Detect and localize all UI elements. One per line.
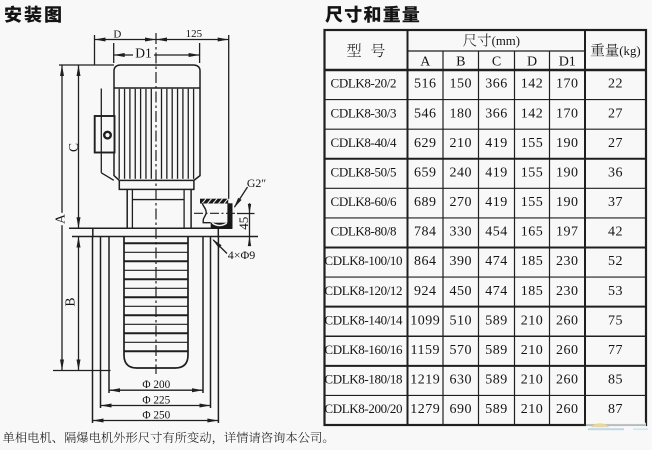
svg-text:B: B	[456, 55, 465, 70]
svg-text:CDLK8-140/14: CDLK8-140/14	[324, 312, 403, 327]
svg-text:142: 142	[521, 106, 544, 121]
svg-text:659: 659	[414, 165, 437, 180]
svg-text:474: 474	[485, 254, 508, 269]
svg-text:CDLK8-20/2: CDLK8-20/2	[331, 76, 397, 91]
svg-text:240: 240	[450, 165, 473, 180]
svg-text:419: 419	[485, 165, 508, 180]
svg-text:190: 190	[556, 165, 579, 180]
svg-text:190: 190	[556, 195, 579, 210]
svg-text:185: 185	[521, 254, 544, 269]
svg-text:CDLK8-120/12: CDLK8-120/12	[324, 283, 402, 298]
svg-text:142: 142	[521, 77, 544, 92]
svg-text:924: 924	[414, 284, 437, 299]
svg-text:77: 77	[608, 343, 623, 358]
svg-text:190: 190	[556, 136, 579, 151]
svg-text:4×Φ9: 4×Φ9	[228, 248, 256, 262]
svg-text:589: 589	[485, 402, 508, 417]
svg-text:CDLK8-100/10: CDLK8-100/10	[324, 253, 402, 268]
svg-text:784: 784	[414, 225, 437, 240]
svg-text:629: 629	[414, 136, 437, 151]
svg-text:689: 689	[414, 195, 437, 210]
svg-text:210: 210	[521, 402, 544, 417]
svg-text:230: 230	[556, 254, 579, 269]
svg-text:390: 390	[450, 254, 473, 269]
svg-text:85: 85	[608, 373, 623, 388]
svg-text:155: 155	[521, 195, 544, 210]
svg-text:D1: D1	[135, 46, 152, 61]
svg-text:197: 197	[556, 225, 579, 240]
svg-text:1099: 1099	[410, 313, 440, 328]
svg-text:155: 155	[521, 136, 544, 151]
svg-text:CDLK8-80/8: CDLK8-80/8	[331, 224, 397, 239]
svg-text:516: 516	[414, 77, 437, 92]
svg-text:155: 155	[521, 165, 544, 180]
svg-text:366: 366	[485, 77, 508, 92]
svg-text:170: 170	[556, 106, 579, 121]
svg-text:570: 570	[450, 343, 473, 358]
svg-text:589: 589	[485, 373, 508, 388]
svg-text:C: C	[66, 143, 81, 152]
svg-text:CDLK8-30/3: CDLK8-30/3	[331, 105, 397, 120]
svg-text:210: 210	[521, 313, 544, 328]
svg-text:Φ 225: Φ 225	[142, 395, 170, 407]
svg-text:260: 260	[556, 343, 579, 358]
svg-text:42: 42	[608, 225, 623, 240]
svg-text:Φ 200: Φ 200	[142, 379, 170, 391]
svg-text:450: 450	[450, 284, 473, 299]
svg-text:366: 366	[485, 106, 508, 121]
svg-text:180: 180	[450, 106, 473, 121]
svg-text:C: C	[492, 55, 501, 70]
svg-text:Φ 250: Φ 250	[142, 410, 170, 422]
svg-text:546: 546	[414, 106, 437, 121]
svg-text:1159: 1159	[411, 343, 440, 358]
svg-text:B: B	[62, 297, 77, 306]
svg-text:A: A	[53, 214, 68, 224]
svg-text:D1: D1	[559, 55, 576, 70]
svg-text:260: 260	[556, 402, 579, 417]
svg-text:CDLK8-180/18: CDLK8-180/18	[324, 372, 402, 387]
svg-text:589: 589	[485, 343, 508, 358]
svg-text:864: 864	[414, 254, 437, 269]
svg-text:D: D	[527, 55, 537, 70]
svg-text:G2″: G2″	[247, 176, 266, 190]
svg-text:D: D	[113, 28, 121, 40]
svg-text:A: A	[420, 55, 431, 70]
svg-text:CDLK8-50/5: CDLK8-50/5	[331, 164, 397, 179]
svg-text:75: 75	[608, 313, 623, 328]
svg-text:37: 37	[608, 195, 623, 210]
svg-text:690: 690	[450, 402, 473, 417]
svg-text:CDLK8-60/6: CDLK8-60/6	[331, 194, 397, 209]
svg-text:1219: 1219	[410, 373, 440, 388]
svg-text:630: 630	[450, 373, 473, 388]
svg-text:170: 170	[556, 77, 579, 92]
svg-text:CDLK8-160/16: CDLK8-160/16	[324, 342, 403, 357]
svg-text:210: 210	[450, 136, 473, 151]
svg-text:589: 589	[485, 313, 508, 328]
svg-text:270: 270	[450, 195, 473, 210]
svg-text:(kg): (kg)	[619, 44, 640, 58]
svg-text:CDLK8-40/4: CDLK8-40/4	[331, 135, 397, 150]
svg-text:(mm): (mm)	[492, 34, 520, 48]
svg-text:27: 27	[608, 106, 623, 121]
svg-text:210: 210	[521, 343, 544, 358]
svg-text:474: 474	[485, 284, 508, 299]
svg-text:230: 230	[556, 284, 579, 299]
svg-text:87: 87	[608, 402, 623, 417]
svg-text:260: 260	[556, 313, 579, 328]
svg-text:510: 510	[450, 313, 473, 328]
svg-text:52: 52	[608, 254, 623, 269]
svg-text:36: 36	[608, 165, 623, 180]
svg-text:419: 419	[485, 136, 508, 151]
svg-text:45: 45	[236, 217, 251, 230]
svg-text:419: 419	[485, 195, 508, 210]
svg-text:330: 330	[450, 225, 473, 240]
svg-text:454: 454	[485, 225, 508, 240]
svg-text:185: 185	[521, 284, 544, 299]
svg-text:22: 22	[608, 77, 623, 92]
svg-text:210: 210	[521, 373, 544, 388]
svg-text:165: 165	[521, 225, 544, 240]
svg-text:150: 150	[450, 77, 473, 92]
svg-text:CDLK8-200/20: CDLK8-200/20	[324, 401, 402, 416]
svg-text:53: 53	[608, 284, 623, 299]
svg-text:27: 27	[608, 136, 623, 151]
svg-text:1279: 1279	[410, 402, 440, 417]
svg-text:260: 260	[556, 373, 579, 388]
svg-text:125: 125	[186, 28, 203, 40]
